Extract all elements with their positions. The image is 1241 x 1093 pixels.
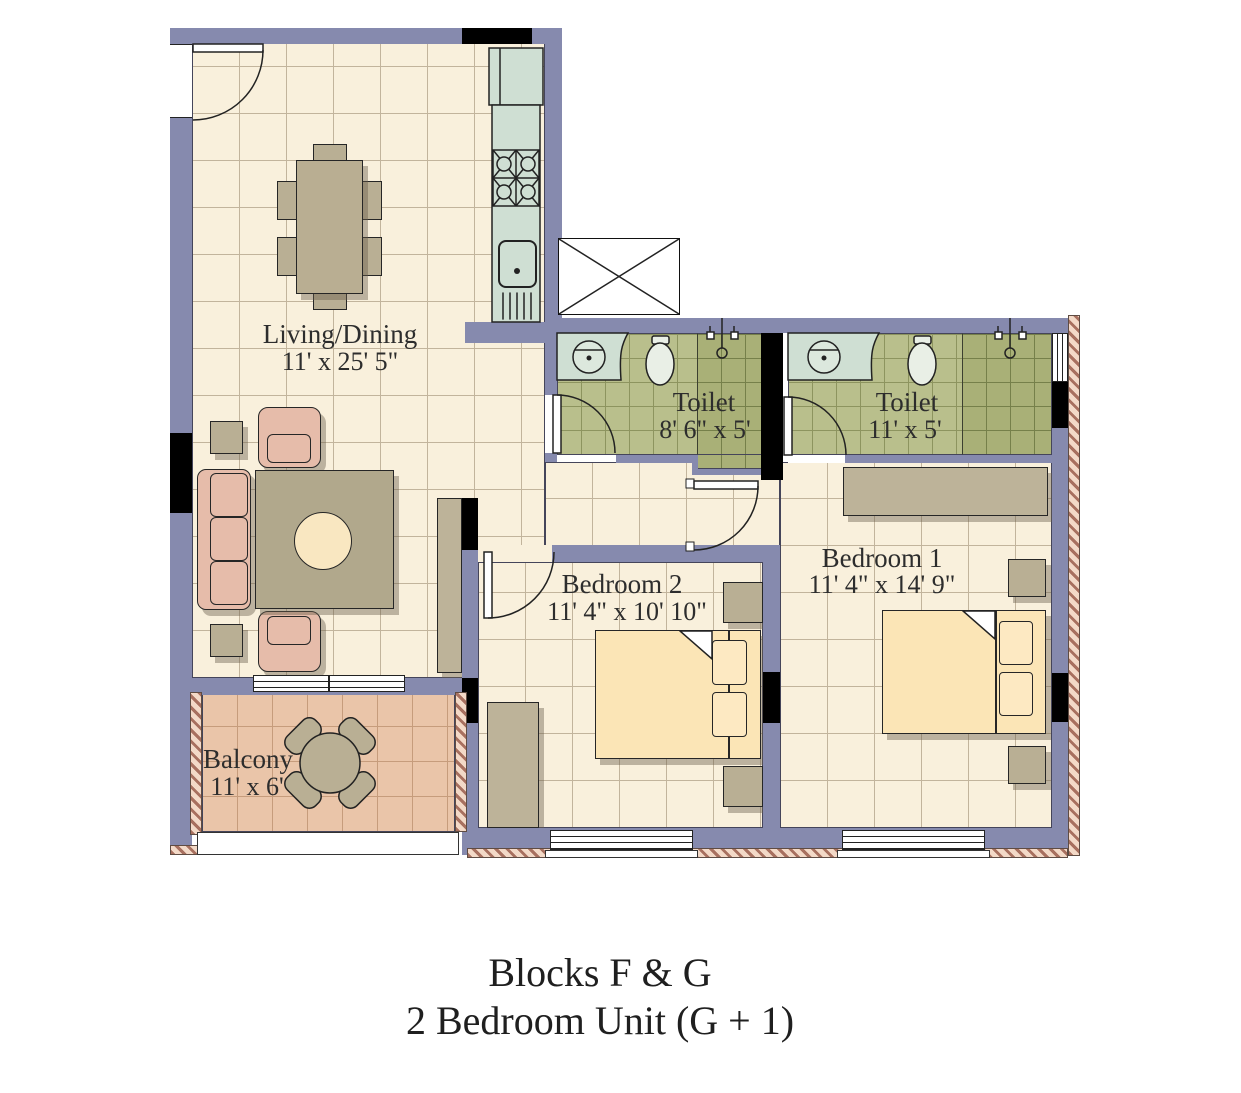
wall-toilet2-bottom — [845, 455, 1068, 463]
armchair-seat — [267, 616, 311, 645]
toilet2-window — [1052, 333, 1068, 382]
balcony-label: Balcony — [203, 745, 293, 773]
bedroom2-window — [550, 830, 693, 850]
wardrobe — [487, 702, 539, 828]
sofa — [197, 469, 251, 610]
bedroom2-label: Bedroom 2 — [562, 570, 683, 598]
plan-title-line2: 2 Bedroom Unit (G + 1) — [406, 999, 794, 1043]
wall-toilet1-bottom — [616, 455, 692, 463]
side-table — [210, 624, 243, 657]
toilet2-shower-area — [962, 333, 1052, 455]
column — [761, 333, 783, 480]
wall-shower-ext-bottom — [692, 469, 763, 475]
toilet1-dims: 8' 6" x 5' — [659, 416, 750, 443]
bedroom1-label: Bedroom 1 — [822, 544, 943, 572]
wall-toilets-top — [545, 318, 1068, 333]
bedroom1-window — [842, 830, 985, 850]
column — [1052, 673, 1068, 722]
balcony-sliding-door — [253, 675, 405, 692]
column — [763, 672, 780, 723]
toilet1-label: Toilet — [673, 388, 736, 416]
sofa-cushion — [210, 473, 248, 517]
dining-chair — [277, 237, 297, 276]
entrance-opening — [170, 44, 192, 118]
duct-shaft — [558, 238, 680, 315]
bedroom2-doorway — [488, 545, 552, 562]
dining-chair — [313, 292, 347, 310]
bedside-table — [723, 766, 763, 807]
outer-wall-hatch-right — [1068, 315, 1080, 856]
window-sill — [837, 850, 990, 858]
toilet1-shower-extension — [697, 455, 762, 469]
pillow — [712, 640, 747, 685]
balcony-pillar-right — [455, 692, 467, 832]
armchair-seat — [267, 434, 311, 463]
column — [462, 498, 478, 550]
armchair — [258, 407, 321, 468]
bedroom2-dims: 11' 4" x 10' 10" — [547, 598, 707, 625]
pillow — [712, 692, 747, 737]
bedside-table — [1008, 746, 1046, 784]
toilet2-label: Toilet — [876, 388, 939, 416]
living-room-dims: 11' x 25' 5" — [282, 348, 399, 375]
dining-chair — [362, 181, 382, 220]
plan-title-line1: Blocks F & G — [488, 951, 711, 995]
pillow — [999, 672, 1033, 716]
balcony-pillar-left — [190, 692, 202, 835]
column — [170, 433, 192, 513]
tv-console — [437, 498, 462, 673]
pillow — [999, 621, 1033, 665]
sofa-cushion — [210, 561, 248, 605]
living-room-label: Living/Dining — [263, 320, 418, 348]
dining-chair — [277, 181, 297, 220]
toilet1-doorway — [545, 395, 557, 453]
bed-headboard-line — [995, 610, 997, 734]
slider-meeting-stile — [328, 676, 330, 691]
dining-table — [296, 160, 363, 294]
armchair — [258, 611, 321, 672]
bedside-table — [1008, 559, 1046, 597]
column — [1052, 382, 1068, 428]
wall-bedroom2-top — [552, 545, 780, 562]
floor-plan: Living/Dining 11' x 25' 5" Toilet 8' 6" … — [0, 0, 1241, 1093]
wall-left-balcony — [170, 678, 192, 855]
sofa-cushion — [210, 517, 248, 561]
bedside-table — [723, 582, 763, 623]
balcony-dims: 11' x 6' — [210, 773, 283, 800]
column — [462, 28, 532, 44]
coffee-table-round — [294, 512, 352, 570]
wall-toilet1-left-jamb — [545, 453, 557, 462]
side-table — [210, 421, 243, 454]
wall-left — [170, 118, 192, 678]
window-sill — [545, 850, 698, 858]
bedroom1-dims: 11' 4" x 14' 9" — [809, 571, 956, 598]
dining-chair — [362, 237, 382, 276]
balcony-open-edge — [197, 832, 459, 855]
toilet2-dims: 11' x 5' — [868, 416, 941, 443]
wardrobe — [843, 467, 1048, 516]
toilet2-doorway — [788, 455, 845, 463]
wall-toilet1-left — [545, 333, 557, 395]
